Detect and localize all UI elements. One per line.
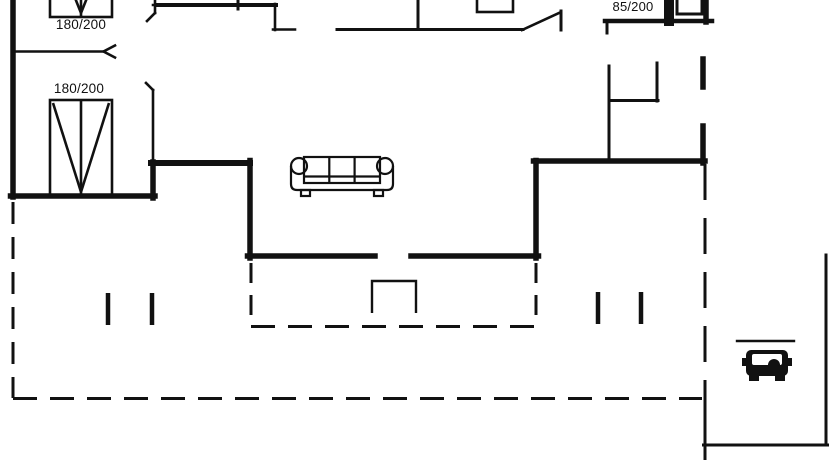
- floor-plan: 180/200 180/200 85/200: [0, 0, 834, 460]
- bed3-size-label: 85/200: [604, 0, 662, 14]
- car-mirror-left: [742, 358, 748, 366]
- bed2-duvet-line: [81, 103, 109, 192]
- door-hook-top: [147, 13, 155, 21]
- fireplace-symbol: [477, 0, 513, 12]
- car-icon: [742, 350, 792, 381]
- terrace-step-icon: [372, 281, 416, 313]
- car-mirror-right: [786, 358, 792, 366]
- pergola-posts: [108, 292, 641, 325]
- door-chevron-icon: [104, 46, 116, 58]
- sofa-icon: [291, 157, 393, 196]
- bed1-duvet-line: [81, 0, 110, 13]
- door-hook-bedroom2: [146, 83, 153, 90]
- single-bed-icon: [677, 0, 702, 14]
- outer-walls: [11, 0, 713, 258]
- car-wheel-left: [749, 375, 759, 381]
- double-bed-icon: [50, 0, 112, 17]
- sofa-body: [304, 157, 380, 183]
- terrace-boundaries: [13, 164, 705, 399]
- bed2-duvet-line: [53, 103, 81, 192]
- bed1-size-label: 180/200: [47, 18, 115, 32]
- bed1-duvet-line: [52, 0, 81, 13]
- car-wheel-right: [775, 375, 785, 381]
- double-bed-icon: [50, 100, 112, 196]
- bed2-size-label: 180/200: [45, 82, 113, 96]
- floor-plan-drawing: [0, 0, 834, 460]
- door-swing-icon: [522, 13, 559, 30]
- sofa-foot: [301, 190, 310, 196]
- sofa-foot: [374, 190, 383, 196]
